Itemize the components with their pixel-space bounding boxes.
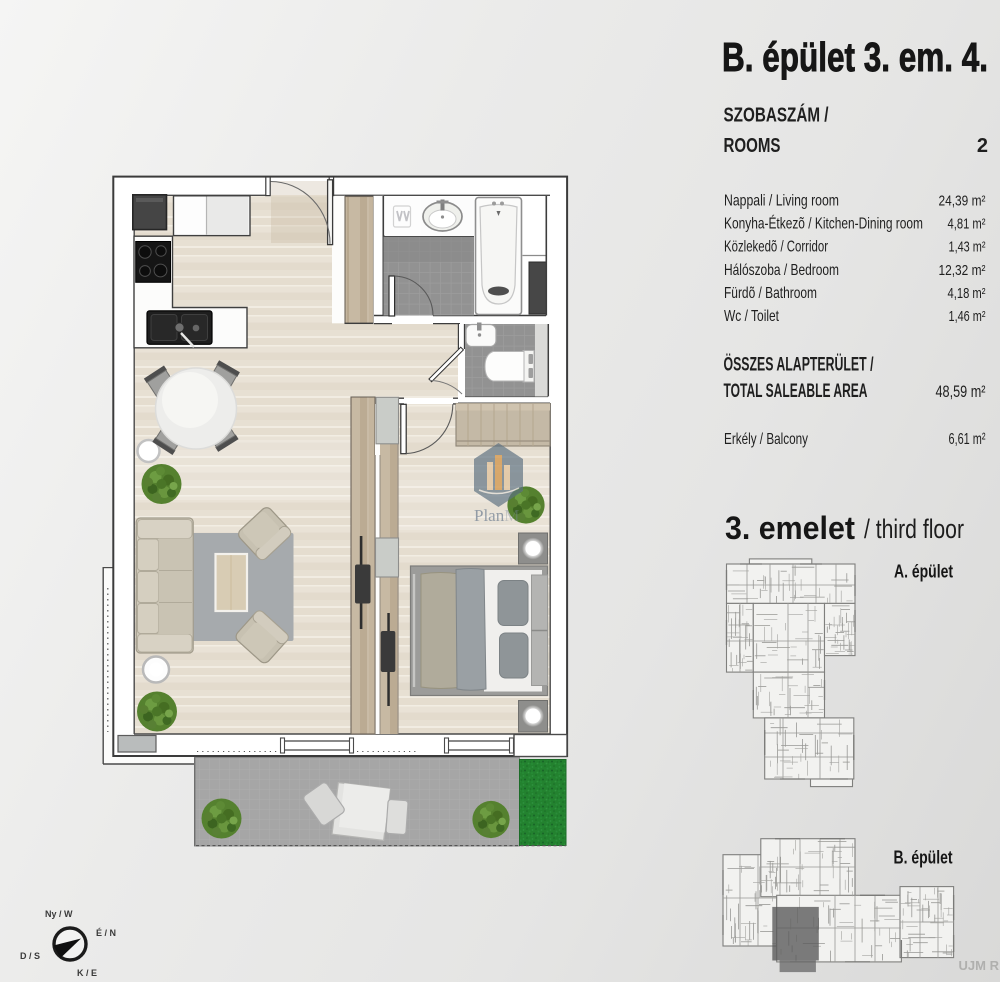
svg-text:PlanM: PlanM xyxy=(474,506,519,525)
svg-text:ÖSSZES ALAPTERÜLET /: ÖSSZES ALAPTERÜLET / xyxy=(724,355,874,376)
svg-text:Hálószoba / Bedroom: Hálószoba / Bedroom xyxy=(724,262,839,279)
svg-text:6,61 m²: 6,61 m² xyxy=(949,431,986,448)
svg-text:SZOBASZÁM /: SZOBASZÁM / xyxy=(724,104,829,127)
svg-text:3. emelet: 3. emelet xyxy=(725,510,855,546)
svg-text:Fürdõ / Bathroom: Fürdõ / Bathroom xyxy=(724,285,817,302)
svg-text:A. épület: A. épület xyxy=(894,562,953,582)
svg-text:Konyha-Étkezõ / Kitchen-Dining: Konyha-Étkezõ / Kitchen-Dining room xyxy=(724,214,923,233)
svg-text:/ third floor: / third floor xyxy=(864,514,964,544)
svg-text:Erkély / Balcony: Erkély / Balcony xyxy=(724,431,808,448)
svg-text:D / S: D / S xyxy=(20,951,40,961)
svg-text:4,81 m²: 4,81 m² xyxy=(948,217,986,233)
svg-text:ROOMS: ROOMS xyxy=(724,135,781,157)
svg-text:1,46 m²: 1,46 m² xyxy=(949,309,986,325)
svg-text:Közlekedõ / Corridor: Közlekedõ / Corridor xyxy=(724,239,828,256)
svg-text:TOTAL SALEABLE AREA: TOTAL SALEABLE AREA xyxy=(724,381,868,402)
svg-text:24,39 m²: 24,39 m² xyxy=(939,194,986,210)
svg-text:1,43 m²: 1,43 m² xyxy=(949,240,986,256)
svg-text:K / E: K / E xyxy=(77,968,97,978)
svg-text:É / N: É / N xyxy=(96,928,116,938)
svg-text:B. épület 3. em. 4.: B. épület 3. em. 4. xyxy=(722,34,988,80)
svg-text:2: 2 xyxy=(977,135,988,157)
svg-text:Nappali / Living room: Nappali / Living room xyxy=(724,193,839,210)
svg-text:UJM R: UJM R xyxy=(959,958,1000,973)
svg-text:48,59 m²: 48,59 m² xyxy=(936,382,986,401)
svg-text:12,32 m²: 12,32 m² xyxy=(939,263,986,279)
svg-text:4,18 m²: 4,18 m² xyxy=(948,286,986,302)
svg-text:Wc / Toilet: Wc / Toilet xyxy=(724,308,779,325)
svg-text:Ny / W: Ny / W xyxy=(45,909,73,919)
svg-text:B. épület: B. épület xyxy=(894,848,953,868)
